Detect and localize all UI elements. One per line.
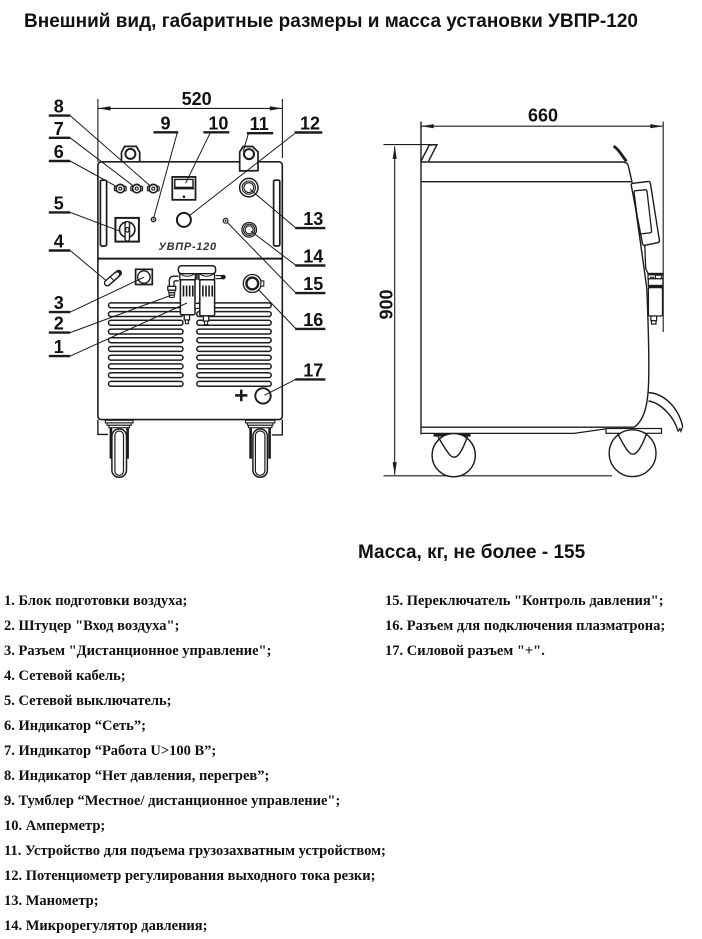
svg-text:3: 3 — [54, 293, 64, 313]
svg-text:8: 8 — [54, 97, 64, 117]
svg-text:13: 13 — [303, 209, 323, 229]
svg-text:12: 12 — [300, 113, 320, 133]
svg-text:14: 14 — [303, 247, 323, 267]
svg-text:2: 2 — [54, 314, 64, 334]
svg-text:17: 17 — [303, 360, 323, 380]
svg-text:1: 1 — [54, 337, 64, 357]
svg-text:УВПР-120: УВПР-120 — [159, 241, 217, 253]
svg-text:10: 10 — [208, 113, 228, 133]
svg-text:4: 4 — [54, 232, 64, 252]
svg-text:9: 9 — [160, 113, 170, 133]
svg-text:6: 6 — [54, 142, 64, 162]
svg-text:7: 7 — [54, 119, 64, 139]
svg-text:5: 5 — [54, 193, 64, 213]
svg-text:660: 660 — [528, 106, 558, 126]
svg-text:15: 15 — [303, 274, 323, 294]
svg-text:11: 11 — [250, 114, 269, 134]
svg-text:520: 520 — [182, 89, 212, 109]
svg-text:16: 16 — [303, 310, 323, 330]
svg-text:900: 900 — [376, 289, 396, 319]
